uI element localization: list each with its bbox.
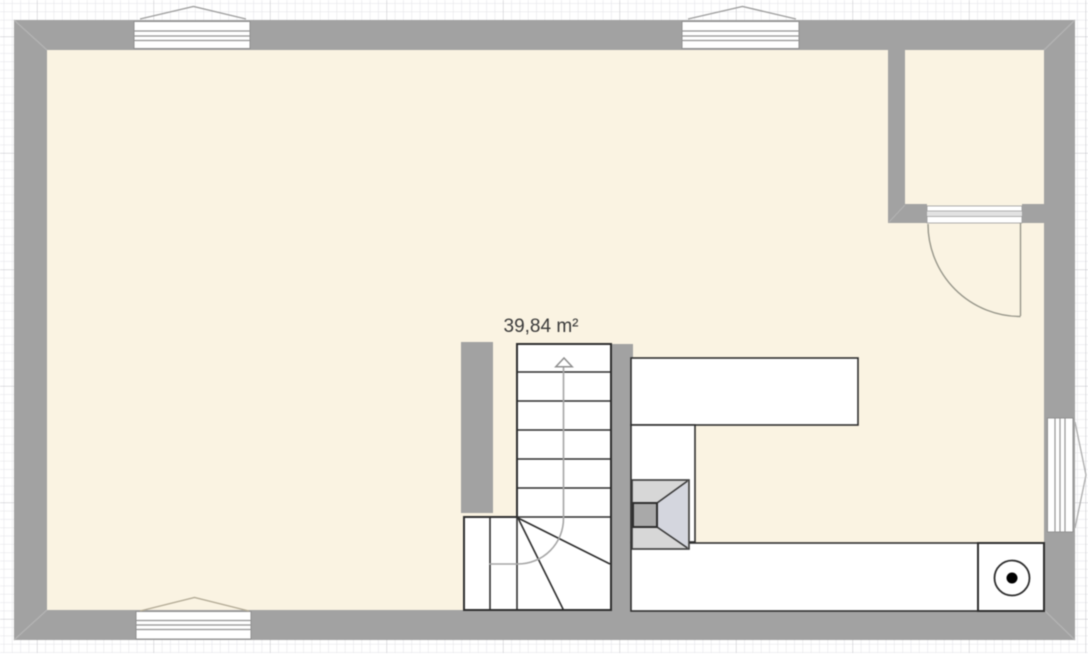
svg-text:39,84 m²: 39,84 m² <box>504 316 579 337</box>
